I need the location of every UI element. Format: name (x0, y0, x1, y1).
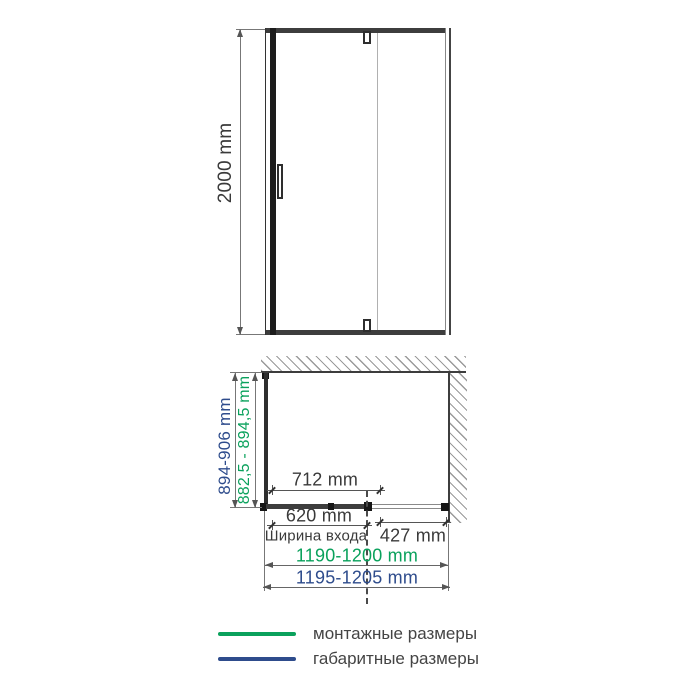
glass-divider-line (377, 33, 378, 330)
width-overall-arrow-left (263, 584, 271, 590)
wall-hatch-top (261, 356, 466, 373)
width-mounting-label: 1190-1200 mm (296, 546, 418, 567)
depth-mounting-dim-line (255, 373, 256, 508)
fixed-width-label: 427 mm (380, 526, 446, 547)
frame-top-profile (265, 28, 446, 33)
legend-mounting-swatch (218, 632, 296, 636)
width-ext-line-right (448, 524, 449, 591)
height-dim-arrow-top (237, 29, 243, 37)
plan-fixed-glass (372, 504, 448, 509)
width-overall-arrow-right (442, 584, 450, 590)
door-hinge-bottom (363, 319, 371, 332)
entry-width-caption: Ширина входа (265, 528, 367, 545)
legend-overall-swatch (218, 657, 296, 661)
frame-right-edge (445, 28, 451, 335)
door-width-label: 712 mm (292, 470, 358, 491)
frame-left-wall-profile (265, 28, 276, 335)
width-ext-line-left (264, 511, 265, 591)
legend-mounting-label: монтажные размеры (313, 624, 477, 644)
shower-door-dimension-drawing: 2000 mm (0, 0, 700, 700)
door-hinge-top (363, 31, 371, 44)
wall-hatch-right (448, 373, 467, 523)
depth-mounting-label: 882,5 - 894,5 mm (236, 376, 254, 505)
width-overall-label: 1195-1205 mm (296, 568, 418, 589)
height-dim-line (240, 29, 241, 335)
frame-bottom-profile (265, 330, 446, 335)
entry-width-label: 620 mm (286, 506, 352, 527)
plan-wall-mount-block (441, 503, 449, 511)
fixed-width-dim-line (375, 522, 451, 523)
depth-overall-label: 894-906 mm (215, 397, 235, 494)
door-handle (277, 164, 283, 199)
height-dim-label: 2000 mm (215, 123, 237, 204)
door-frame (265, 28, 449, 335)
legend-overall-label: габаритные размеры (313, 649, 479, 669)
width-mounting-arrow-left (265, 562, 273, 568)
width-mounting-arrow-right (440, 562, 448, 568)
height-dim-arrow-bottom (237, 327, 243, 335)
plan-wall-profile (264, 373, 268, 507)
